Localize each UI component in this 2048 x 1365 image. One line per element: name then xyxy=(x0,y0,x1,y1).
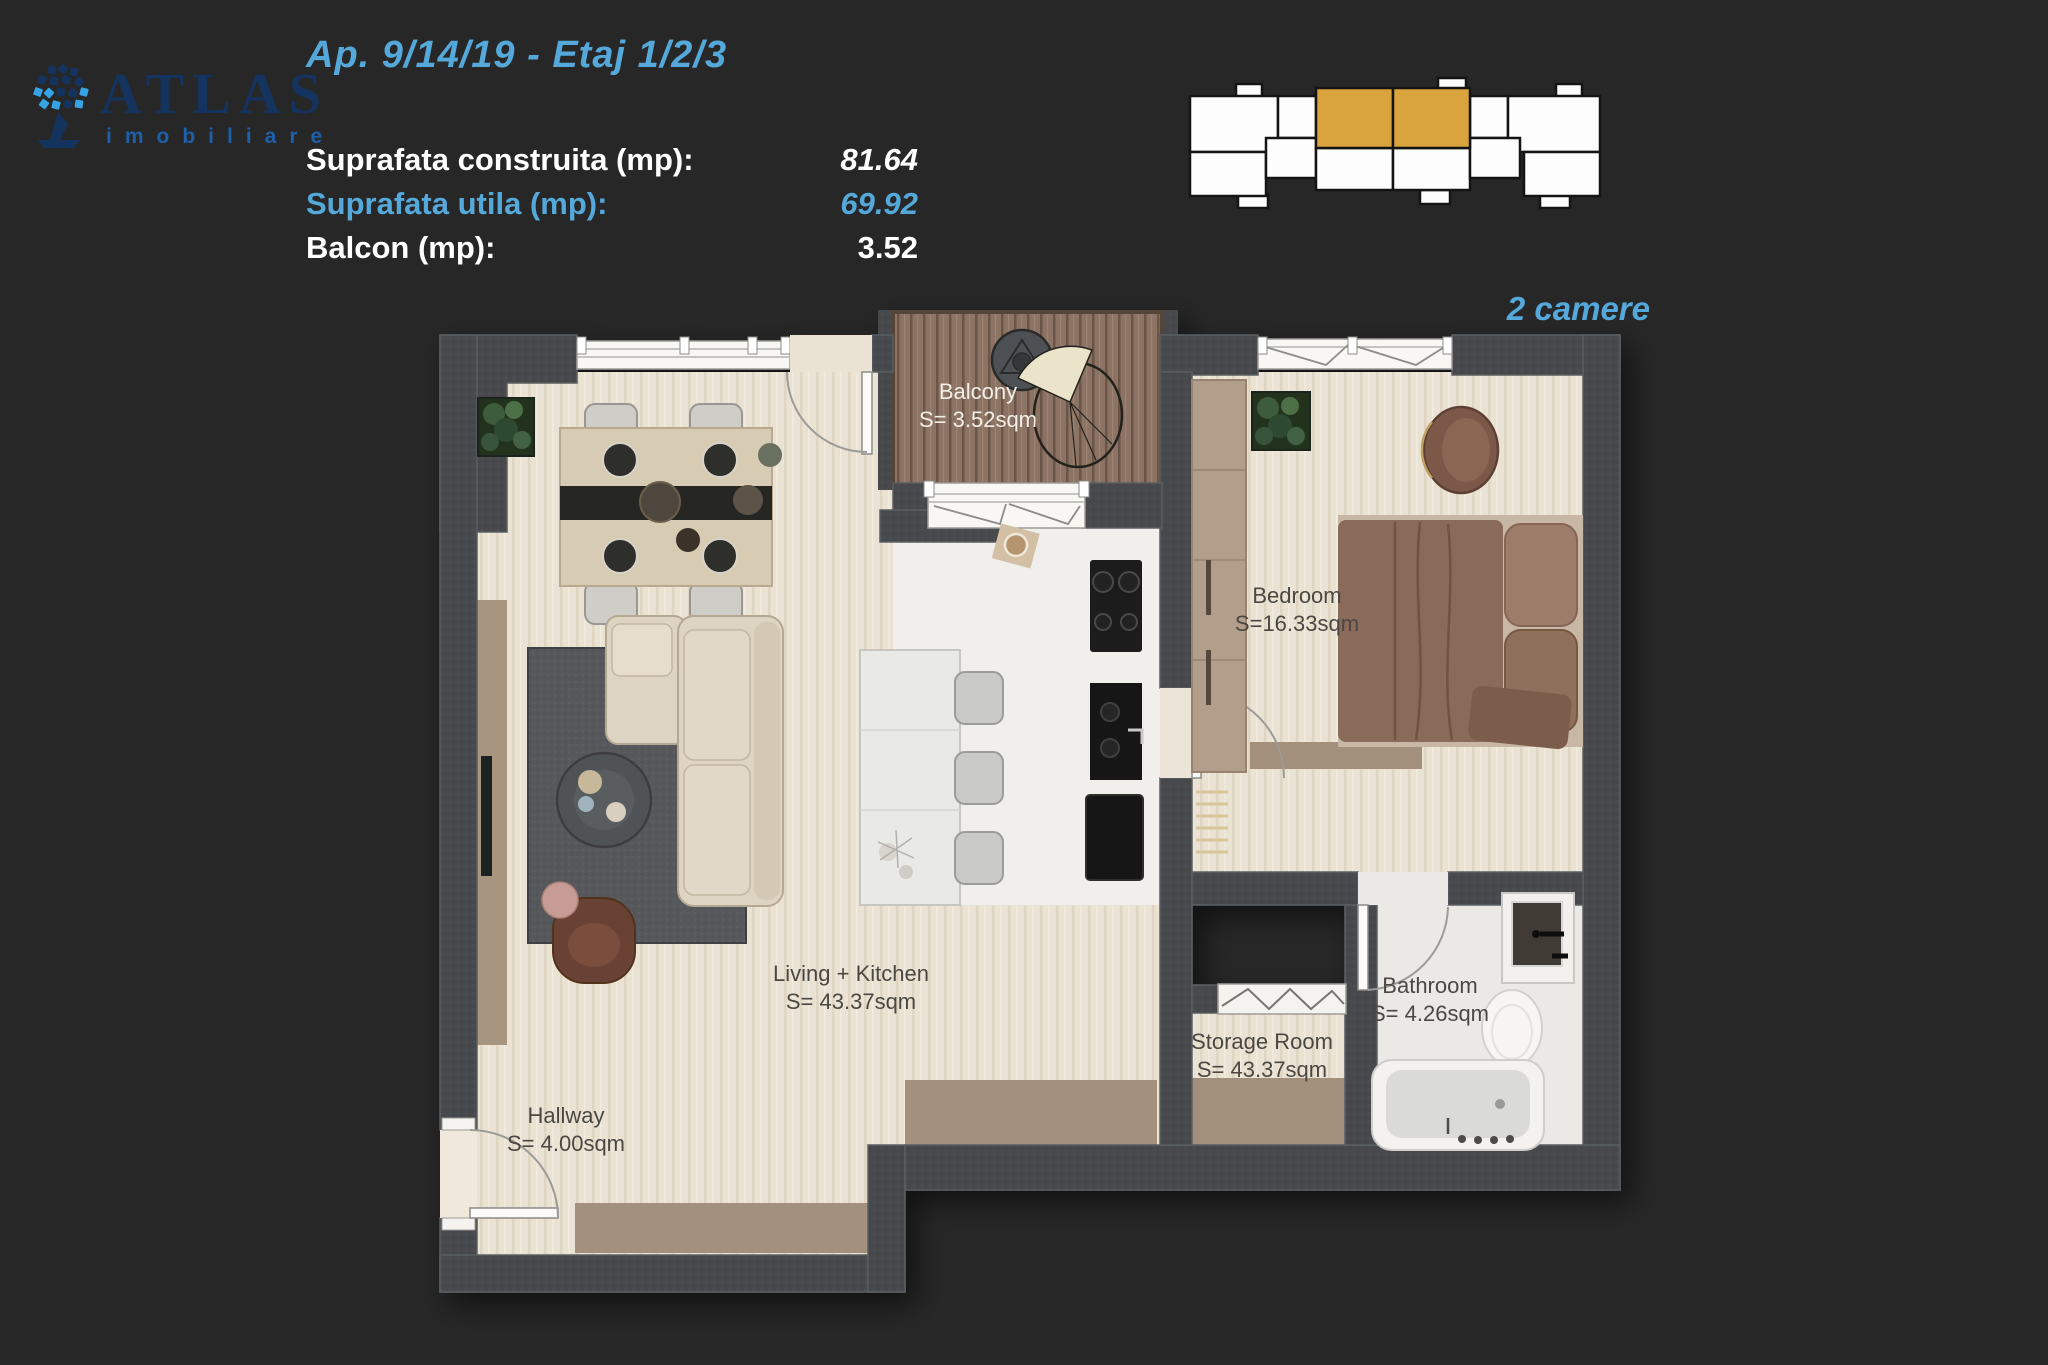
stat-value: 81.64 xyxy=(748,138,918,182)
stat-label: Suprafata utila (mp): xyxy=(306,182,607,226)
stat-label: Suprafata construita (mp): xyxy=(306,138,694,182)
page-title: Ap. 9/14/19 - Etaj 1/2/3 xyxy=(306,34,727,77)
coffee-table xyxy=(557,753,651,847)
room-label-bathroom: Bathroom S= 4.26sqm xyxy=(1371,972,1489,1028)
wall-under-balcony-right xyxy=(1082,483,1162,528)
room-label-bedroom: Bedroom S=16.33sqm xyxy=(1235,582,1359,638)
area-stats: Suprafata construita (mp): 81.64 Suprafa… xyxy=(306,138,918,270)
unit xyxy=(1393,148,1470,190)
living-sideboard xyxy=(905,1080,1157,1145)
bar-chair xyxy=(955,672,1003,724)
unit xyxy=(1316,148,1393,190)
bed xyxy=(1338,515,1583,750)
room-area: S=16.33sqm xyxy=(1235,610,1359,638)
bathtub xyxy=(1372,1060,1544,1150)
wall-storage-top-left xyxy=(1192,985,1220,1013)
kitchen-island xyxy=(860,650,1003,905)
stat-row-built-area: Suprafata construita (mp): 81.64 xyxy=(306,138,918,182)
bar-chair xyxy=(955,832,1003,884)
room-label-living-kitchen: Living + Kitchen S= 43.37sqm xyxy=(773,960,929,1016)
wall-bottom-left xyxy=(440,1255,905,1292)
wall-step-connector xyxy=(868,1145,905,1292)
stat-row-balcony-area: Balcon (mp): 3.52 xyxy=(306,226,918,270)
room-area: S= 43.37sqm xyxy=(773,988,929,1016)
planter-living xyxy=(478,398,534,456)
stat-value: 3.52 xyxy=(748,226,918,270)
room-label-storage: Storage Room S= 43.37sqm xyxy=(1191,1028,1333,1084)
room-name: Balcony xyxy=(919,378,1037,406)
wardrobe xyxy=(1192,380,1246,772)
wall-kitchen-bedroom-upper xyxy=(1160,372,1192,688)
logo-text: ATLAS xyxy=(100,64,335,125)
room-area: S= 4.26sqm xyxy=(1371,1000,1489,1028)
key-plan-units xyxy=(1190,78,1600,208)
planter-bedroom xyxy=(1252,392,1310,450)
wall-pier-balcony-left xyxy=(872,335,893,372)
room-name: Bedroom xyxy=(1235,582,1359,610)
living-window xyxy=(577,337,790,369)
bedroom-chair xyxy=(1422,407,1498,493)
storage-closet-strip xyxy=(1192,1078,1345,1145)
tv-console xyxy=(481,756,492,876)
bedroom-window xyxy=(1258,337,1452,369)
cooktop xyxy=(1090,560,1142,652)
balcony-window xyxy=(924,481,1089,528)
room-area: S= 43.37sqm xyxy=(1191,1056,1333,1084)
highlighted-unit xyxy=(1316,88,1393,148)
unit xyxy=(1190,152,1266,196)
logo-subtitle: imobiliare xyxy=(100,125,335,149)
wall-kitchen-bedroom-lower xyxy=(1160,778,1192,1145)
room-name: Hallway xyxy=(507,1102,625,1130)
stat-label: Balcon (mp): xyxy=(306,226,495,270)
fridge xyxy=(1086,795,1143,880)
unit xyxy=(1266,138,1316,178)
room-area: S= 3.52sqm xyxy=(919,406,1037,434)
bathroom-sink xyxy=(1502,893,1574,983)
hallway-sideboard xyxy=(575,1203,868,1253)
atlas-globe-icon xyxy=(28,64,94,160)
kitchen-sink xyxy=(1090,683,1142,780)
room-label-balcony: Balcony S= 3.52sqm xyxy=(919,378,1037,434)
unit xyxy=(1470,96,1508,138)
atlas-logo: ATLAS imobiliare xyxy=(28,64,335,160)
stat-value: 69.92 xyxy=(748,182,918,226)
wall-left-upper xyxy=(440,335,477,1130)
apartment-type-badge: 2 camere xyxy=(1396,290,1650,328)
unit xyxy=(1508,96,1600,152)
building-key-plan xyxy=(1188,66,1618,221)
unit xyxy=(1470,138,1520,178)
room-name: Storage Room xyxy=(1191,1028,1333,1056)
toilet xyxy=(1482,990,1542,1066)
room-name: Bathroom xyxy=(1371,972,1489,1000)
page: { "header": { "logo": { "text": "ATLAS",… xyxy=(0,0,2048,1365)
wall-bedroom-bath-left xyxy=(1192,872,1358,905)
storage-folding-door xyxy=(1218,984,1346,1014)
highlighted-unit xyxy=(1393,88,1470,148)
bar-chair xyxy=(955,752,1003,804)
room-label-hallway: Hallway S= 4.00sqm xyxy=(507,1102,625,1158)
pouf xyxy=(542,882,578,918)
wall-bottom-mid xyxy=(905,1145,1620,1190)
wall-top-mid xyxy=(1160,335,1258,375)
wall-right xyxy=(1583,335,1620,1190)
room-area: S= 4.00sqm xyxy=(507,1130,625,1158)
unit xyxy=(1524,152,1600,196)
unit xyxy=(1278,96,1316,138)
stat-row-usable-area: Suprafata utila (mp): 69.92 xyxy=(306,182,918,226)
room-name: Living + Kitchen xyxy=(773,960,929,988)
